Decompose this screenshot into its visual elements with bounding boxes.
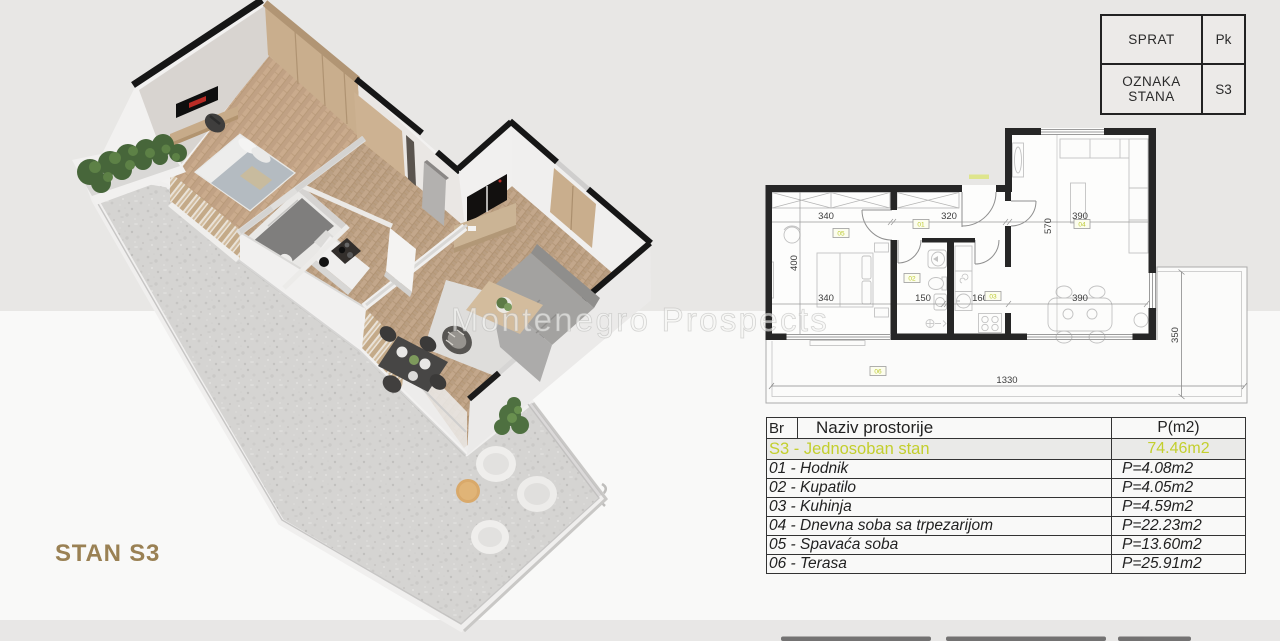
svg-text:320: 320 [941,211,957,222]
svg-text:01: 01 [917,222,925,229]
svg-text:350: 350 [1170,327,1181,343]
svg-text:02: 02 [908,276,916,283]
svg-text:04: 04 [1078,222,1086,229]
svg-text:05: 05 [837,231,845,238]
svg-text:06: 06 [874,369,882,376]
svg-text:03: 03 [989,294,997,301]
svg-text:340: 340 [818,211,834,222]
svg-text:400: 400 [789,255,800,271]
svg-text:1330: 1330 [996,375,1017,386]
svg-text:570: 570 [1043,218,1054,234]
svg-text:390: 390 [1072,293,1088,304]
